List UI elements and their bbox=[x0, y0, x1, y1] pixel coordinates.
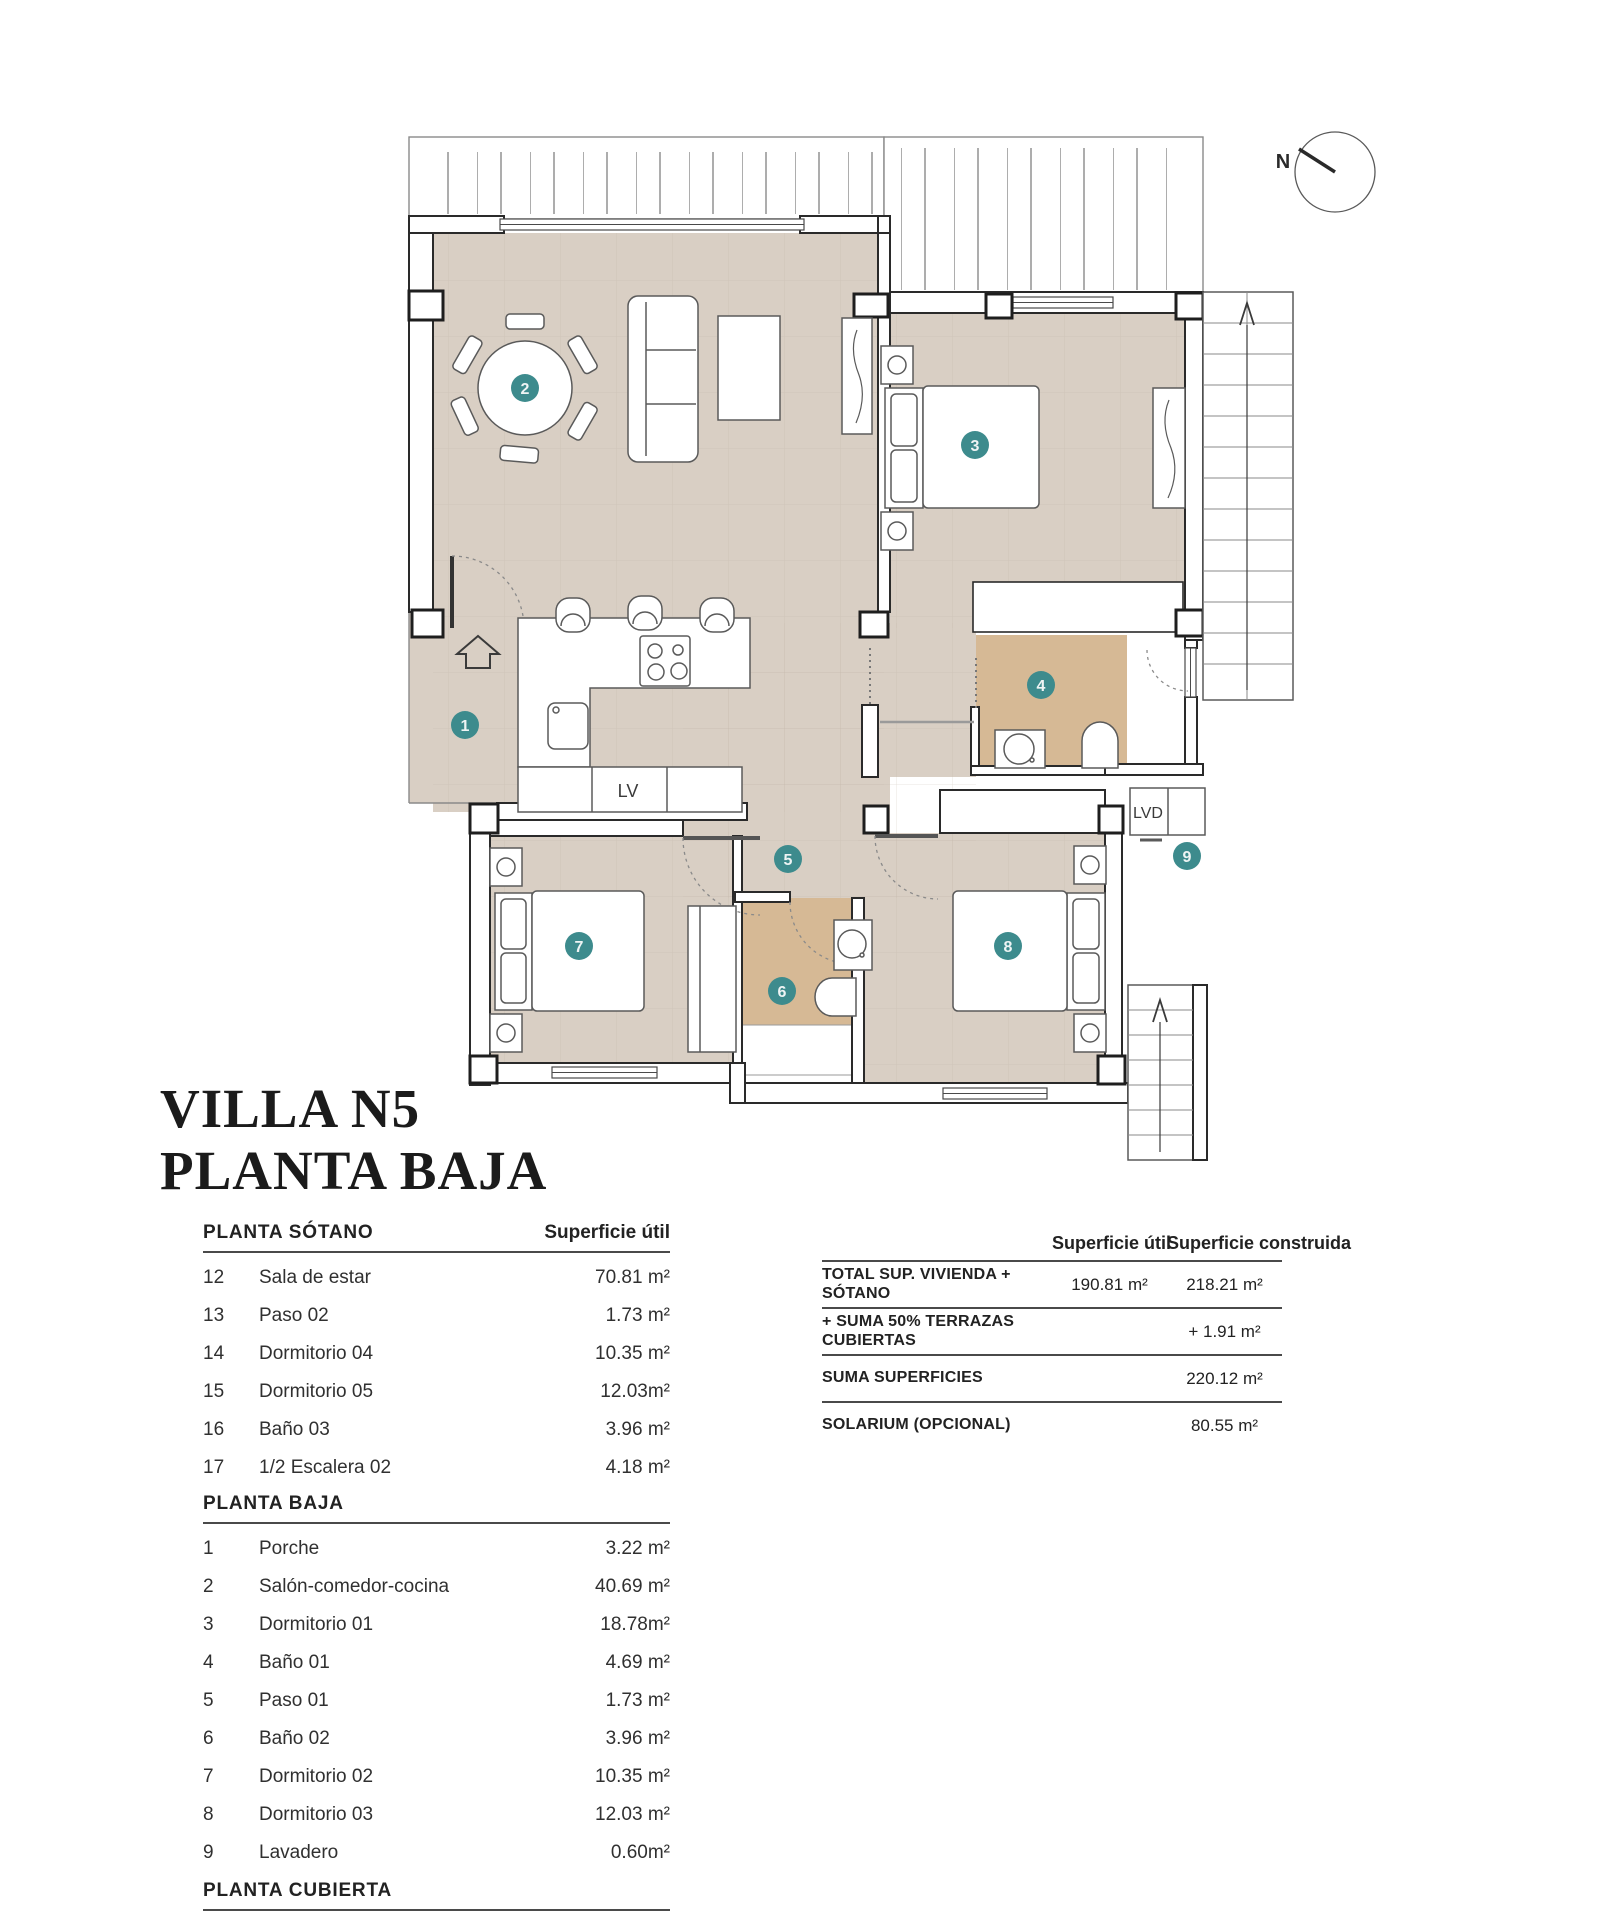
stairs-south bbox=[1128, 985, 1207, 1160]
table-row: 5Paso 011.73 m² bbox=[203, 1682, 670, 1720]
page-title: VILLA N5 PLANTA BAJA bbox=[160, 1078, 547, 1202]
table-row: 9Lavadero0.60m² bbox=[203, 1834, 670, 1872]
column-header-superficie-util: Superficie útil bbox=[544, 1222, 670, 1244]
table-row: 6Baño 023.96 m² bbox=[203, 1720, 670, 1758]
bedroom2-wardrobe bbox=[688, 906, 736, 1052]
living-wardrobe bbox=[842, 318, 872, 434]
svg-text:4: 4 bbox=[1037, 678, 1046, 695]
section-header-cubierta: PLANTA CUBIERTA bbox=[203, 1880, 670, 1911]
marker-bano02: 6 bbox=[768, 977, 796, 1005]
table-row: 14Dormitorio 0410.35 m² bbox=[203, 1335, 670, 1373]
shower-floor bbox=[736, 1025, 858, 1075]
bathroom1-toilet bbox=[1082, 722, 1118, 768]
marker-paso01: 5 bbox=[774, 845, 802, 873]
table-row: 3Dormitorio 0118.78m² bbox=[203, 1606, 670, 1644]
table-row: 171/2 Escalera 024.18 m² bbox=[203, 1449, 670, 1487]
marker-bano01: 4 bbox=[1027, 671, 1055, 699]
marker-porche: 1 bbox=[451, 711, 479, 739]
section-header-baja: PLANTA BAJA bbox=[203, 1493, 670, 1524]
laundry-label: LVD bbox=[1133, 805, 1163, 822]
marker-dormitorio02: 7 bbox=[565, 932, 593, 960]
compass-north-label: N bbox=[1276, 151, 1290, 173]
section-header-sotano: PLANTA SÓTANO Superficie útil bbox=[203, 1222, 670, 1253]
bar-stools bbox=[556, 596, 734, 632]
floorplan-sheet: { "title": {"line1": "VILLA N5", "line2"… bbox=[0, 0, 1600, 1903]
title-line1: VILLA N5 bbox=[160, 1078, 547, 1140]
rear-door-arc bbox=[1147, 650, 1188, 691]
floor-plan: N LV LVD 1 2 3 4 5 6 7 8 9 bbox=[0, 0, 1600, 1200]
area-table: PLANTA SÓTANO Superficie útil 12Sala de … bbox=[203, 1220, 670, 1911]
table-row: 15Dormitorio 0512.03m² bbox=[203, 1373, 670, 1411]
summary-row-suma: SUMA SUPERFICIES 220.12 m² bbox=[822, 1354, 1282, 1401]
marker-dormitorio01: 3 bbox=[961, 431, 989, 459]
sotano-rows: 12Sala de estar70.81 m² 13Paso 021.73 m²… bbox=[203, 1259, 670, 1487]
table-row: 2Salón-comedor-cocina40.69 m² bbox=[203, 1568, 670, 1606]
section-label: PLANTA BAJA bbox=[203, 1493, 344, 1515]
compass-icon: N bbox=[1276, 132, 1375, 212]
floor-plan-svg: N LV LVD 1 2 3 4 5 6 7 8 9 bbox=[0, 0, 1600, 1200]
svg-text:6: 6 bbox=[778, 984, 787, 1001]
svg-text:1: 1 bbox=[461, 718, 470, 735]
summary-row-total: TOTAL SUP. VIVIENDA + SÓTANO 190.81 m² 2… bbox=[822, 1260, 1282, 1307]
pergola-slats-right bbox=[895, 148, 1183, 290]
summary-row-terrazas: + SUMA 50% TERRAZAS CUBIERTAS + 1.91 m² bbox=[822, 1307, 1282, 1354]
svg-text:2: 2 bbox=[521, 381, 530, 398]
svg-text:5: 5 bbox=[784, 852, 793, 869]
table-row: 7Dormitorio 0210.35 m² bbox=[203, 1758, 670, 1796]
summary-table: Superficie útil Superficie construida TO… bbox=[822, 1220, 1282, 1448]
stairs-east bbox=[1203, 292, 1293, 700]
table-row: 16Baño 033.96 m² bbox=[203, 1411, 670, 1449]
table-row: 1Porche3.22 m² bbox=[203, 1530, 670, 1568]
summary-header: Superficie útil Superficie construida bbox=[822, 1220, 1282, 1254]
sideboard bbox=[718, 316, 780, 420]
marker-lavadero: 9 bbox=[1173, 842, 1201, 870]
dishwasher-label: LV bbox=[618, 781, 639, 801]
svg-text:8: 8 bbox=[1004, 939, 1013, 956]
baja-rows: 1Porche3.22 m² 2Salón-comedor-cocina40.6… bbox=[203, 1530, 670, 1872]
table-row: 4Baño 014.69 m² bbox=[203, 1644, 670, 1682]
title-line2: PLANTA BAJA bbox=[160, 1140, 547, 1202]
bedroom1-wardrobe bbox=[1153, 388, 1185, 508]
svg-text:9: 9 bbox=[1183, 849, 1192, 866]
marker-salon: 2 bbox=[511, 374, 539, 402]
svg-text:7: 7 bbox=[575, 939, 584, 956]
pergola-slats-left bbox=[438, 152, 878, 214]
section-label: PLANTA CUBIERTA bbox=[203, 1880, 392, 1902]
bedroom1-closet bbox=[973, 582, 1183, 632]
table-row: 8Dormitorio 0312.03 m² bbox=[203, 1796, 670, 1834]
summary-col1-header: Superficie útil bbox=[1052, 1233, 1167, 1254]
sofa bbox=[628, 296, 698, 462]
summary-col2-header: Superficie construida bbox=[1167, 1233, 1351, 1254]
marker-dormitorio03: 8 bbox=[994, 932, 1022, 960]
summary-row-solarium: SOLARIUM (OPCIONAL) 80.55 m² bbox=[822, 1401, 1282, 1448]
table-row: 13Paso 021.73 m² bbox=[203, 1297, 670, 1335]
section-label: PLANTA SÓTANO bbox=[203, 1222, 373, 1244]
svg-text:3: 3 bbox=[971, 438, 980, 455]
table-row: 12Sala de estar70.81 m² bbox=[203, 1259, 670, 1297]
bathroom2-toilet bbox=[815, 978, 856, 1016]
